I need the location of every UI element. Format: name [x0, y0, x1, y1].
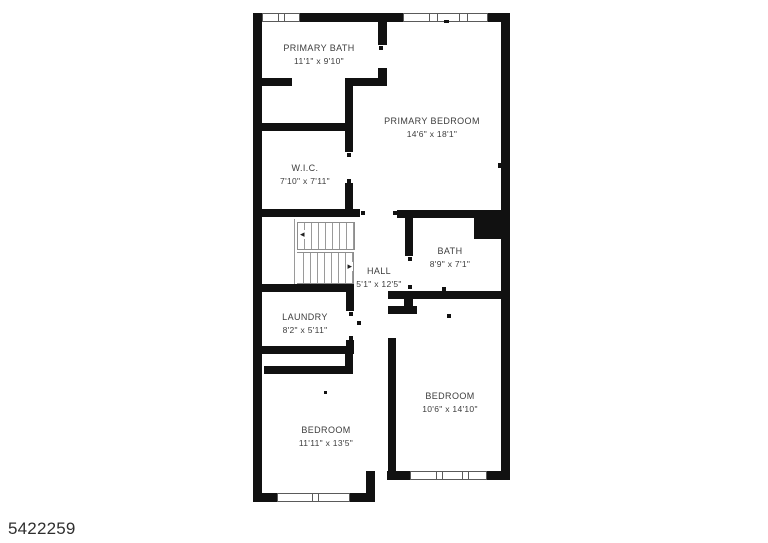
wall-bath-bottom-left — [262, 78, 292, 86]
stair-flight-upper — [297, 222, 355, 250]
wall-suite-vertical-upper — [345, 78, 353, 152]
room-label-laundry: LAUNDRY 8'2" x 5'11" — [245, 311, 365, 337]
door-tick — [442, 287, 446, 291]
listing-id: 5422259 — [8, 519, 76, 539]
window-mullion — [467, 14, 468, 21]
room-dimensions: 14'6" x 18'1" — [372, 128, 492, 141]
room-dimensions: 8'2" x 5'11" — [245, 324, 365, 337]
door-tick — [324, 391, 327, 394]
wall-wic-top — [262, 123, 353, 131]
window-mullion — [284, 14, 285, 21]
wall-laundry-bottom — [262, 346, 354, 354]
room-label-primary-bath: PRIMARY BATH 11'1" x 9'10" — [259, 42, 379, 68]
room-dimensions: 7'10" x 7'11" — [245, 175, 365, 188]
room-dimensions: 8'9" x 7'1" — [390, 258, 510, 271]
room-name: BEDROOM — [266, 424, 386, 437]
room-name: LAUNDRY — [245, 311, 365, 324]
window-mullion — [429, 14, 430, 21]
room-dimensions: 5'1" x 12'5" — [319, 278, 439, 291]
room-label-bedroom-right: BEDROOM 10'6" x 14'10" — [390, 390, 510, 416]
window-mullion — [436, 472, 437, 479]
room-name: BEDROOM — [390, 390, 510, 403]
window-mullion — [459, 14, 460, 21]
door-tick — [379, 46, 383, 50]
stair-up-arrow-icon: ◂ — [299, 230, 306, 239]
window-mullion — [318, 494, 319, 501]
room-label-bedroom-left: BEDROOM 11'11" x 13'5" — [266, 424, 386, 450]
room-dimensions: 11'11" x 13'5" — [266, 437, 386, 450]
window-mullion — [278, 14, 279, 21]
room-label-bath: BATH 8'9" x 7'1" — [390, 245, 510, 271]
room-name: PRIMARY BATH — [259, 42, 379, 55]
window-bottom-right — [410, 471, 487, 480]
room-label-wic: W.I.C. 7'10" x 7'11" — [245, 162, 365, 188]
room-dimensions: 11'1" x 9'10" — [259, 55, 379, 68]
window-mullion — [442, 472, 443, 479]
wall-hall-jog-v — [404, 291, 413, 314]
floor-plan: ◂ ▸ PRIMARY BATH 11'1" x 9'10" PRIMARY B… — [0, 0, 768, 543]
wall-closet-stub — [345, 354, 353, 374]
door-tick — [444, 20, 449, 23]
door-tick — [390, 339, 394, 343]
room-name: PRIMARY BEDROOM — [372, 115, 492, 128]
window-mullion — [468, 472, 469, 479]
window-mullion — [462, 472, 463, 479]
door-tick — [347, 153, 351, 157]
wall-left — [253, 13, 262, 502]
wall-closet-bar — [264, 366, 345, 374]
chimney-block — [474, 214, 502, 239]
room-label-primary-bedroom: PRIMARY BEDROOM 14'6" x 18'1" — [372, 115, 492, 141]
wall-bath-bedroom-divider — [378, 22, 387, 45]
door-tick — [361, 211, 365, 215]
window-top-left — [262, 13, 300, 22]
room-name: W.I.C. — [245, 162, 365, 175]
room-name: BATH — [390, 245, 510, 258]
window-mullion — [437, 14, 438, 21]
door-tick — [447, 314, 451, 318]
window-bottom-left — [277, 493, 350, 502]
door-tick — [393, 211, 397, 215]
door-tick — [498, 163, 501, 168]
room-dimensions: 10'6" x 14'10" — [390, 403, 510, 416]
window-mullion — [312, 494, 313, 501]
wall-hall-top — [262, 209, 360, 217]
